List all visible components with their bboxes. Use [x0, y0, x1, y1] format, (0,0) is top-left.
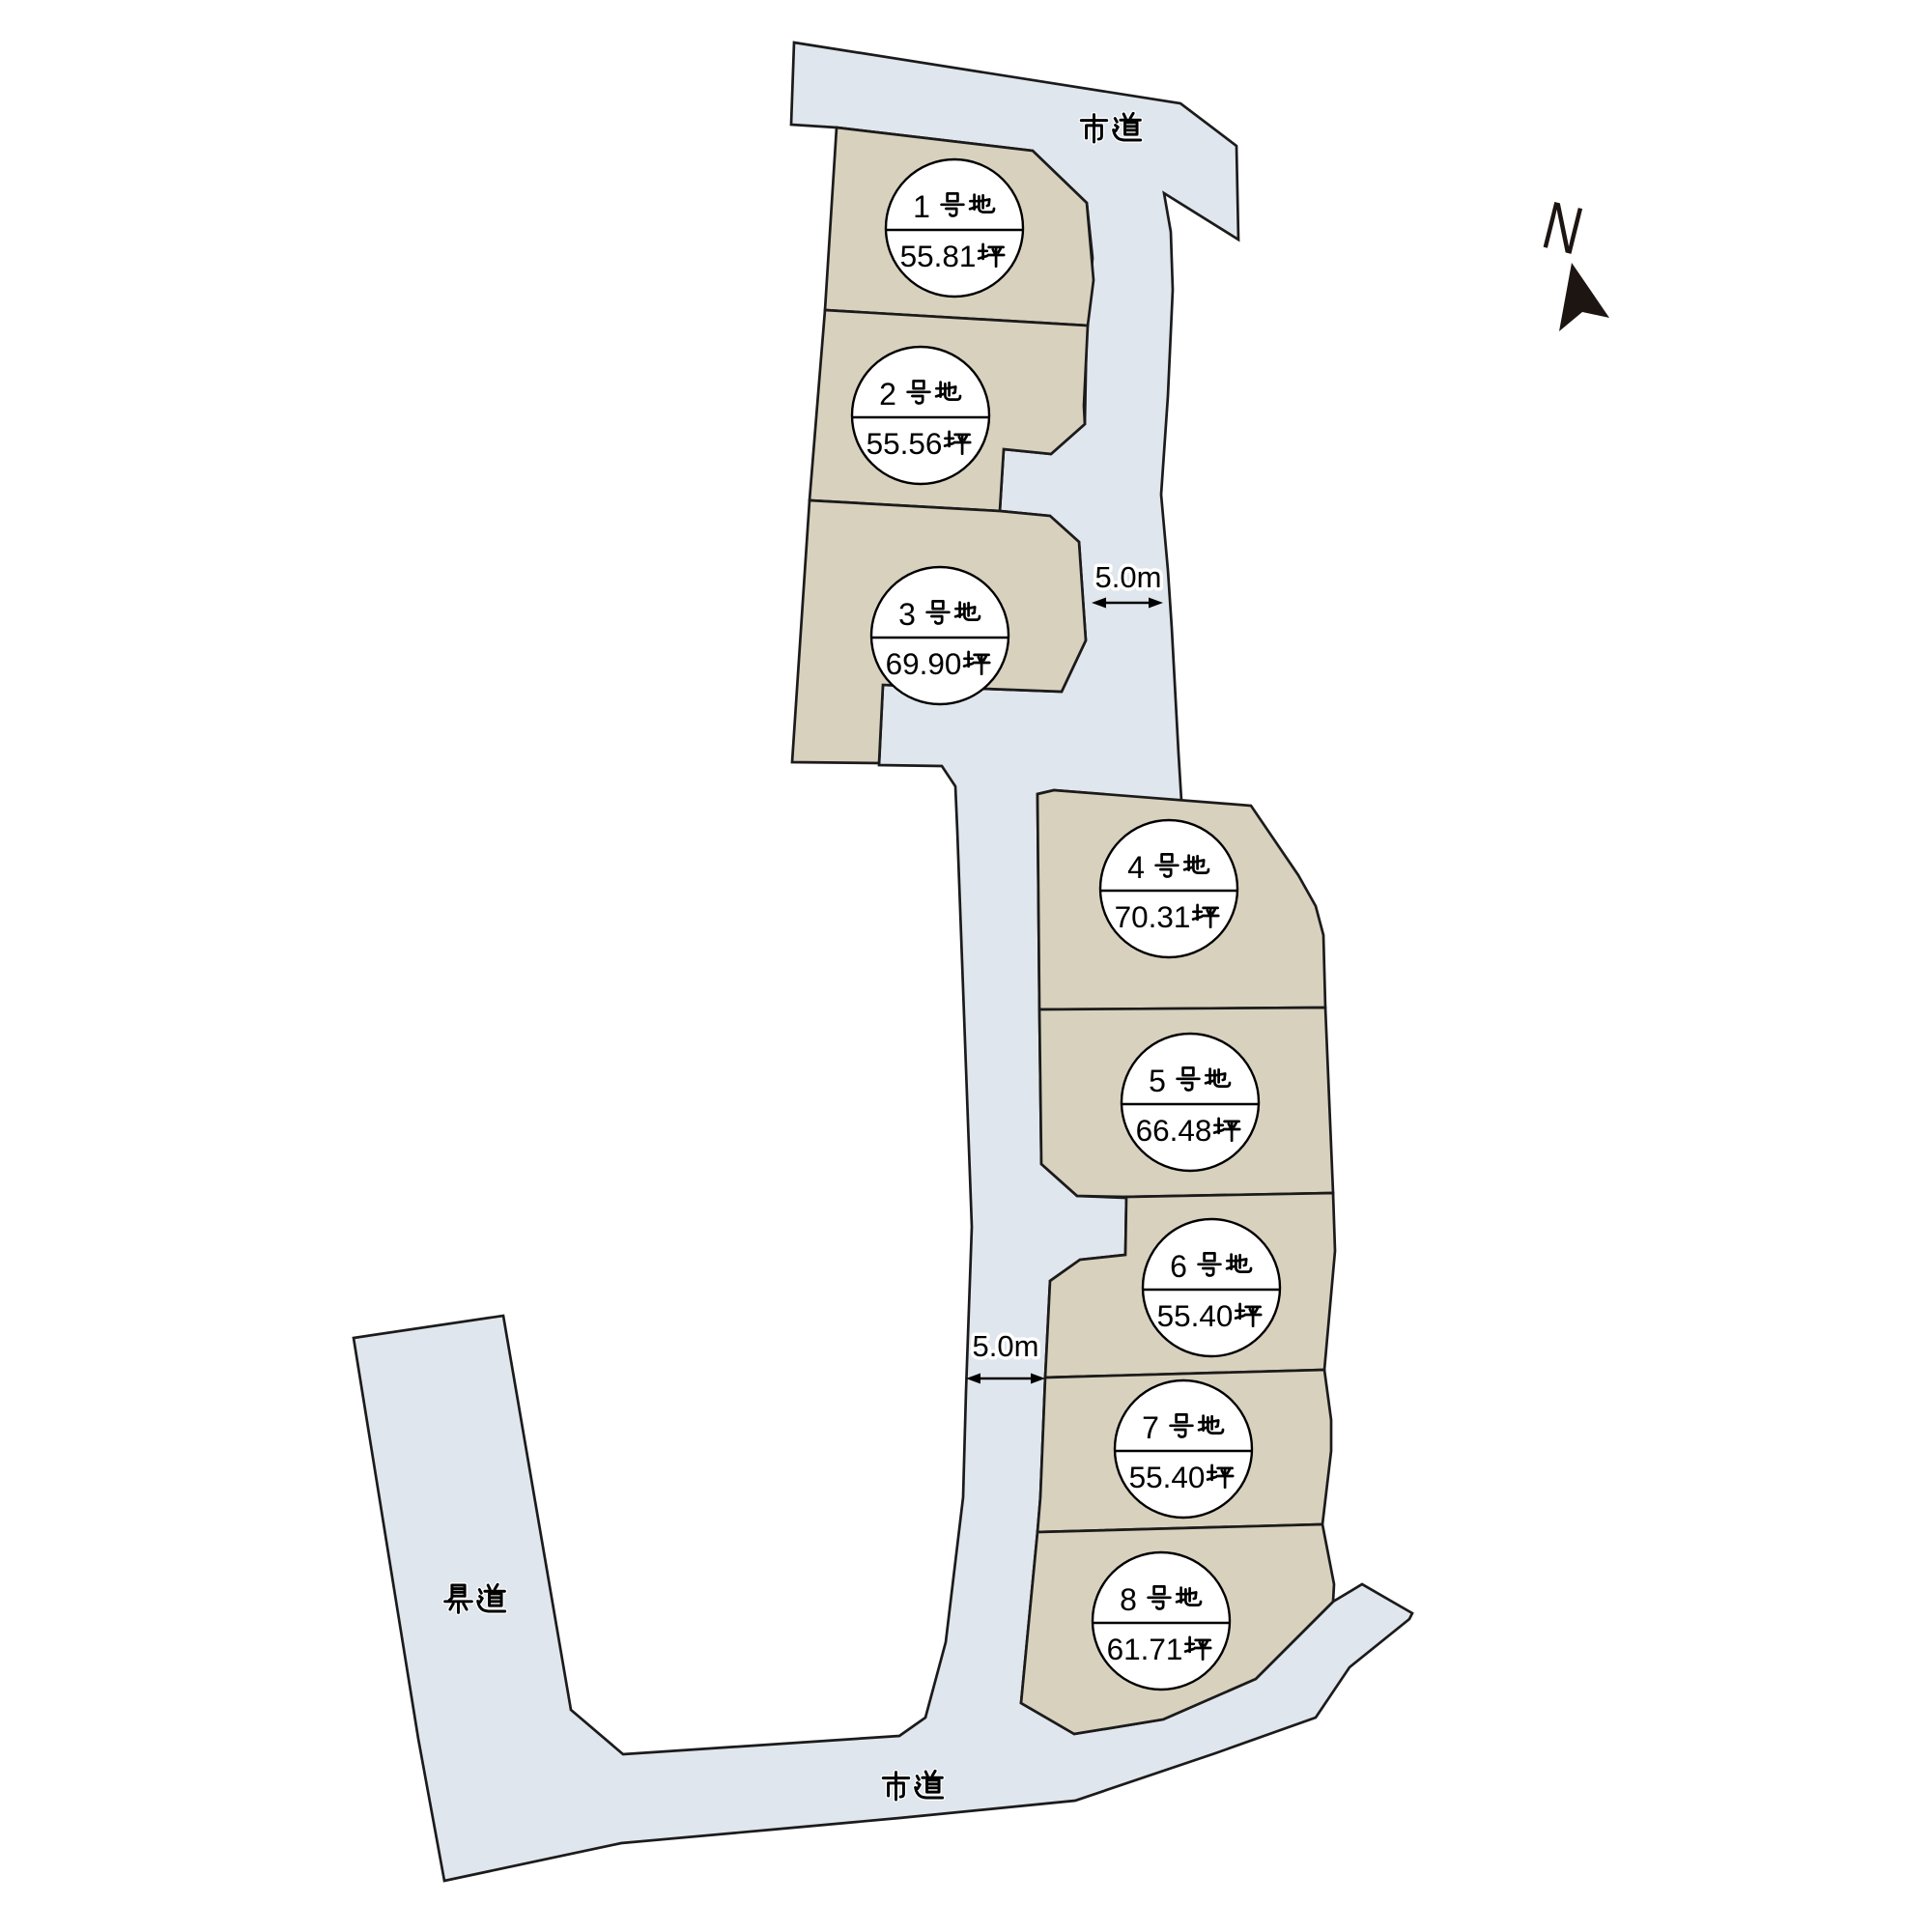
svg-text:55.40: 55.40	[1129, 1460, 1206, 1494]
svg-text:7: 7	[1142, 1410, 1159, 1445]
svg-text:2: 2	[879, 377, 896, 412]
svg-text:69.90: 69.90	[886, 646, 962, 681]
svg-text:55.40: 55.40	[1157, 1298, 1234, 1333]
svg-text:61.71: 61.71	[1107, 1632, 1183, 1666]
svg-text:55.81: 55.81	[900, 239, 977, 273]
svg-text:5.0m: 5.0m	[973, 1329, 1039, 1363]
svg-text:3: 3	[898, 597, 916, 632]
svg-text:55.56: 55.56	[867, 426, 943, 461]
svg-text:5.0m: 5.0m	[1095, 560, 1162, 594]
svg-text:1: 1	[913, 189, 930, 224]
svg-text:4: 4	[1127, 850, 1145, 885]
svg-text:5: 5	[1149, 1064, 1166, 1098]
svg-text:8: 8	[1120, 1582, 1137, 1617]
svg-text:6: 6	[1170, 1249, 1187, 1284]
svg-text:66.48: 66.48	[1136, 1113, 1212, 1148]
svg-text:70.31: 70.31	[1115, 899, 1191, 934]
